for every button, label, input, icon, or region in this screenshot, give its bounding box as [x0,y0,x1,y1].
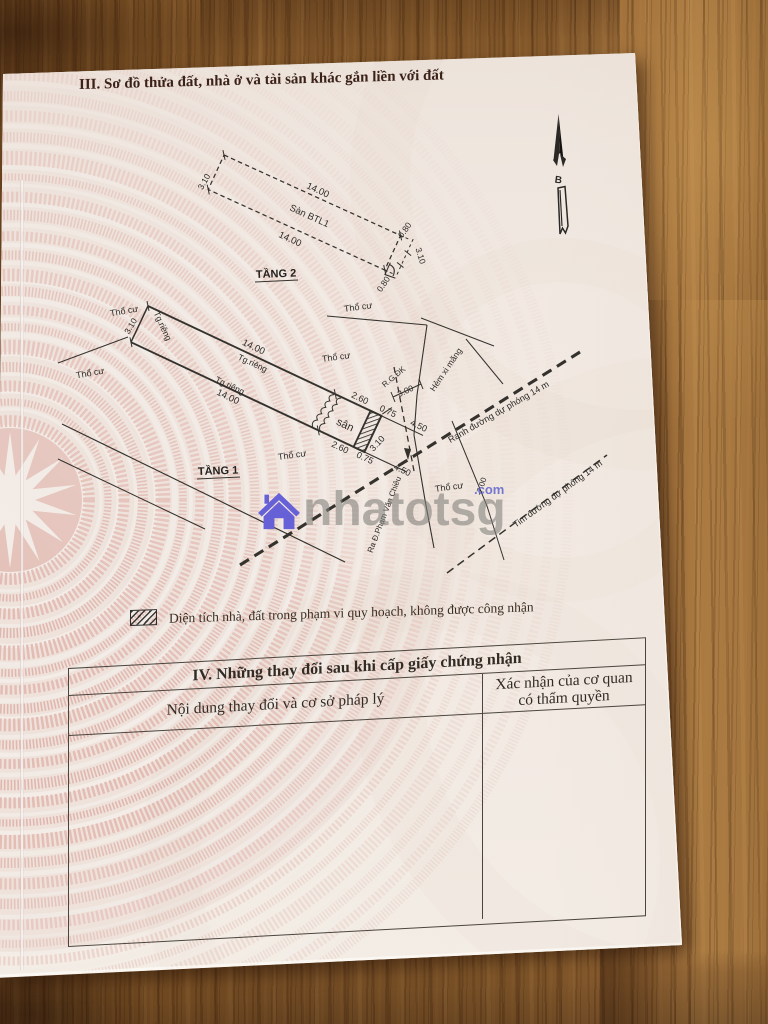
svg-text:Thổ cư: Thổ cư [75,366,105,381]
svg-text:sân: sân [334,416,355,434]
svg-text:TẦNG 1: TẦNG 1 [198,464,239,478]
svg-text:3.10: 3.10 [122,316,139,336]
svg-text:0.80: 0.80 [375,274,393,294]
svg-text:3.10: 3.10 [195,172,212,192]
svg-text:2.60: 2.60 [330,439,350,456]
svg-text:14.00: 14.00 [277,230,303,250]
svg-text:Hẻm xi măng: Hẻm xi măng [428,346,464,393]
svg-text:4.50: 4.50 [409,417,429,434]
svg-text:B: B [554,175,563,187]
svg-text:Thổ cư: Thổ cư [321,350,351,364]
svg-text:Thổ cư: Thổ cư [343,300,373,314]
svg-text:Thổ cư: Thổ cư [109,304,139,319]
svg-text:TẦNG 2: TẦNG 2 [256,267,297,281]
svg-text:0.80: 0.80 [396,220,414,240]
svg-text:3.10: 3.10 [413,246,428,265]
svg-text:Sàn BTL1: Sàn BTL1 [288,203,331,231]
svg-text:3.00: 3.00 [396,383,415,399]
svg-text:0.75: 0.75 [355,450,375,467]
svg-text:Thổ cư: Thổ cư [277,448,307,462]
svg-text:Tim đường dự phóng 14 m: Tim đường dự phóng 14 m [511,458,604,529]
svg-text:Ranh đường dự phóng 14 m: Ranh đường dự phóng 14 m [446,379,550,445]
svg-text:Tg.riêng: Tg.riêng [152,310,174,343]
svg-text:2.60: 2.60 [350,390,370,407]
